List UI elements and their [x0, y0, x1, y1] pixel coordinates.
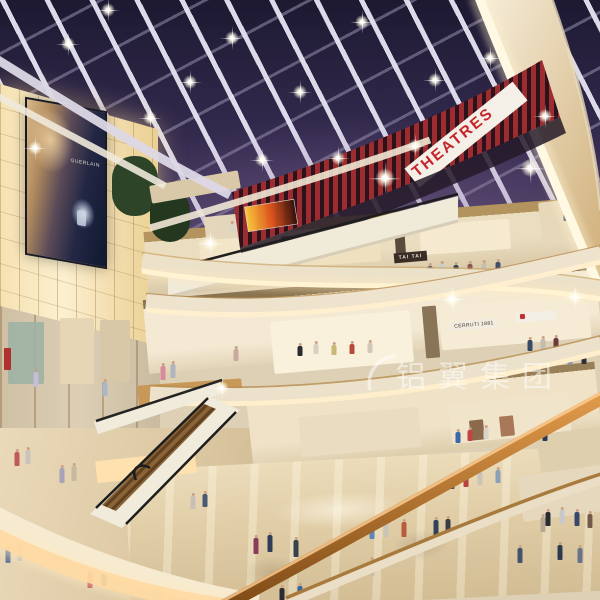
light-sparkle	[27, 140, 43, 156]
light-sparkle	[182, 74, 198, 90]
light-sparkle	[224, 30, 240, 46]
light-sparkle	[482, 50, 498, 66]
light-sparkle	[100, 2, 116, 18]
light-sparkle	[374, 167, 396, 189]
light-sparkle	[60, 36, 76, 52]
light-sparkle	[292, 84, 308, 100]
light-sparkle	[214, 380, 230, 396]
light-sparkle	[566, 288, 584, 306]
mall-atrium-rendering: GUERLAIN	[0, 0, 600, 600]
light-flares-layer	[0, 0, 600, 600]
light-sparkle	[442, 289, 463, 310]
light-sparkle	[537, 108, 553, 124]
light-sparkle	[354, 14, 370, 30]
light-sparkle	[254, 152, 270, 168]
light-sparkle	[200, 233, 219, 252]
light-sparkle	[427, 72, 443, 88]
light-sparkle	[407, 138, 423, 154]
light-sparkle	[330, 150, 346, 166]
light-sparkle	[520, 158, 541, 179]
watermark-text: 铝翼集团	[396, 352, 564, 396]
light-sparkle	[142, 110, 158, 126]
